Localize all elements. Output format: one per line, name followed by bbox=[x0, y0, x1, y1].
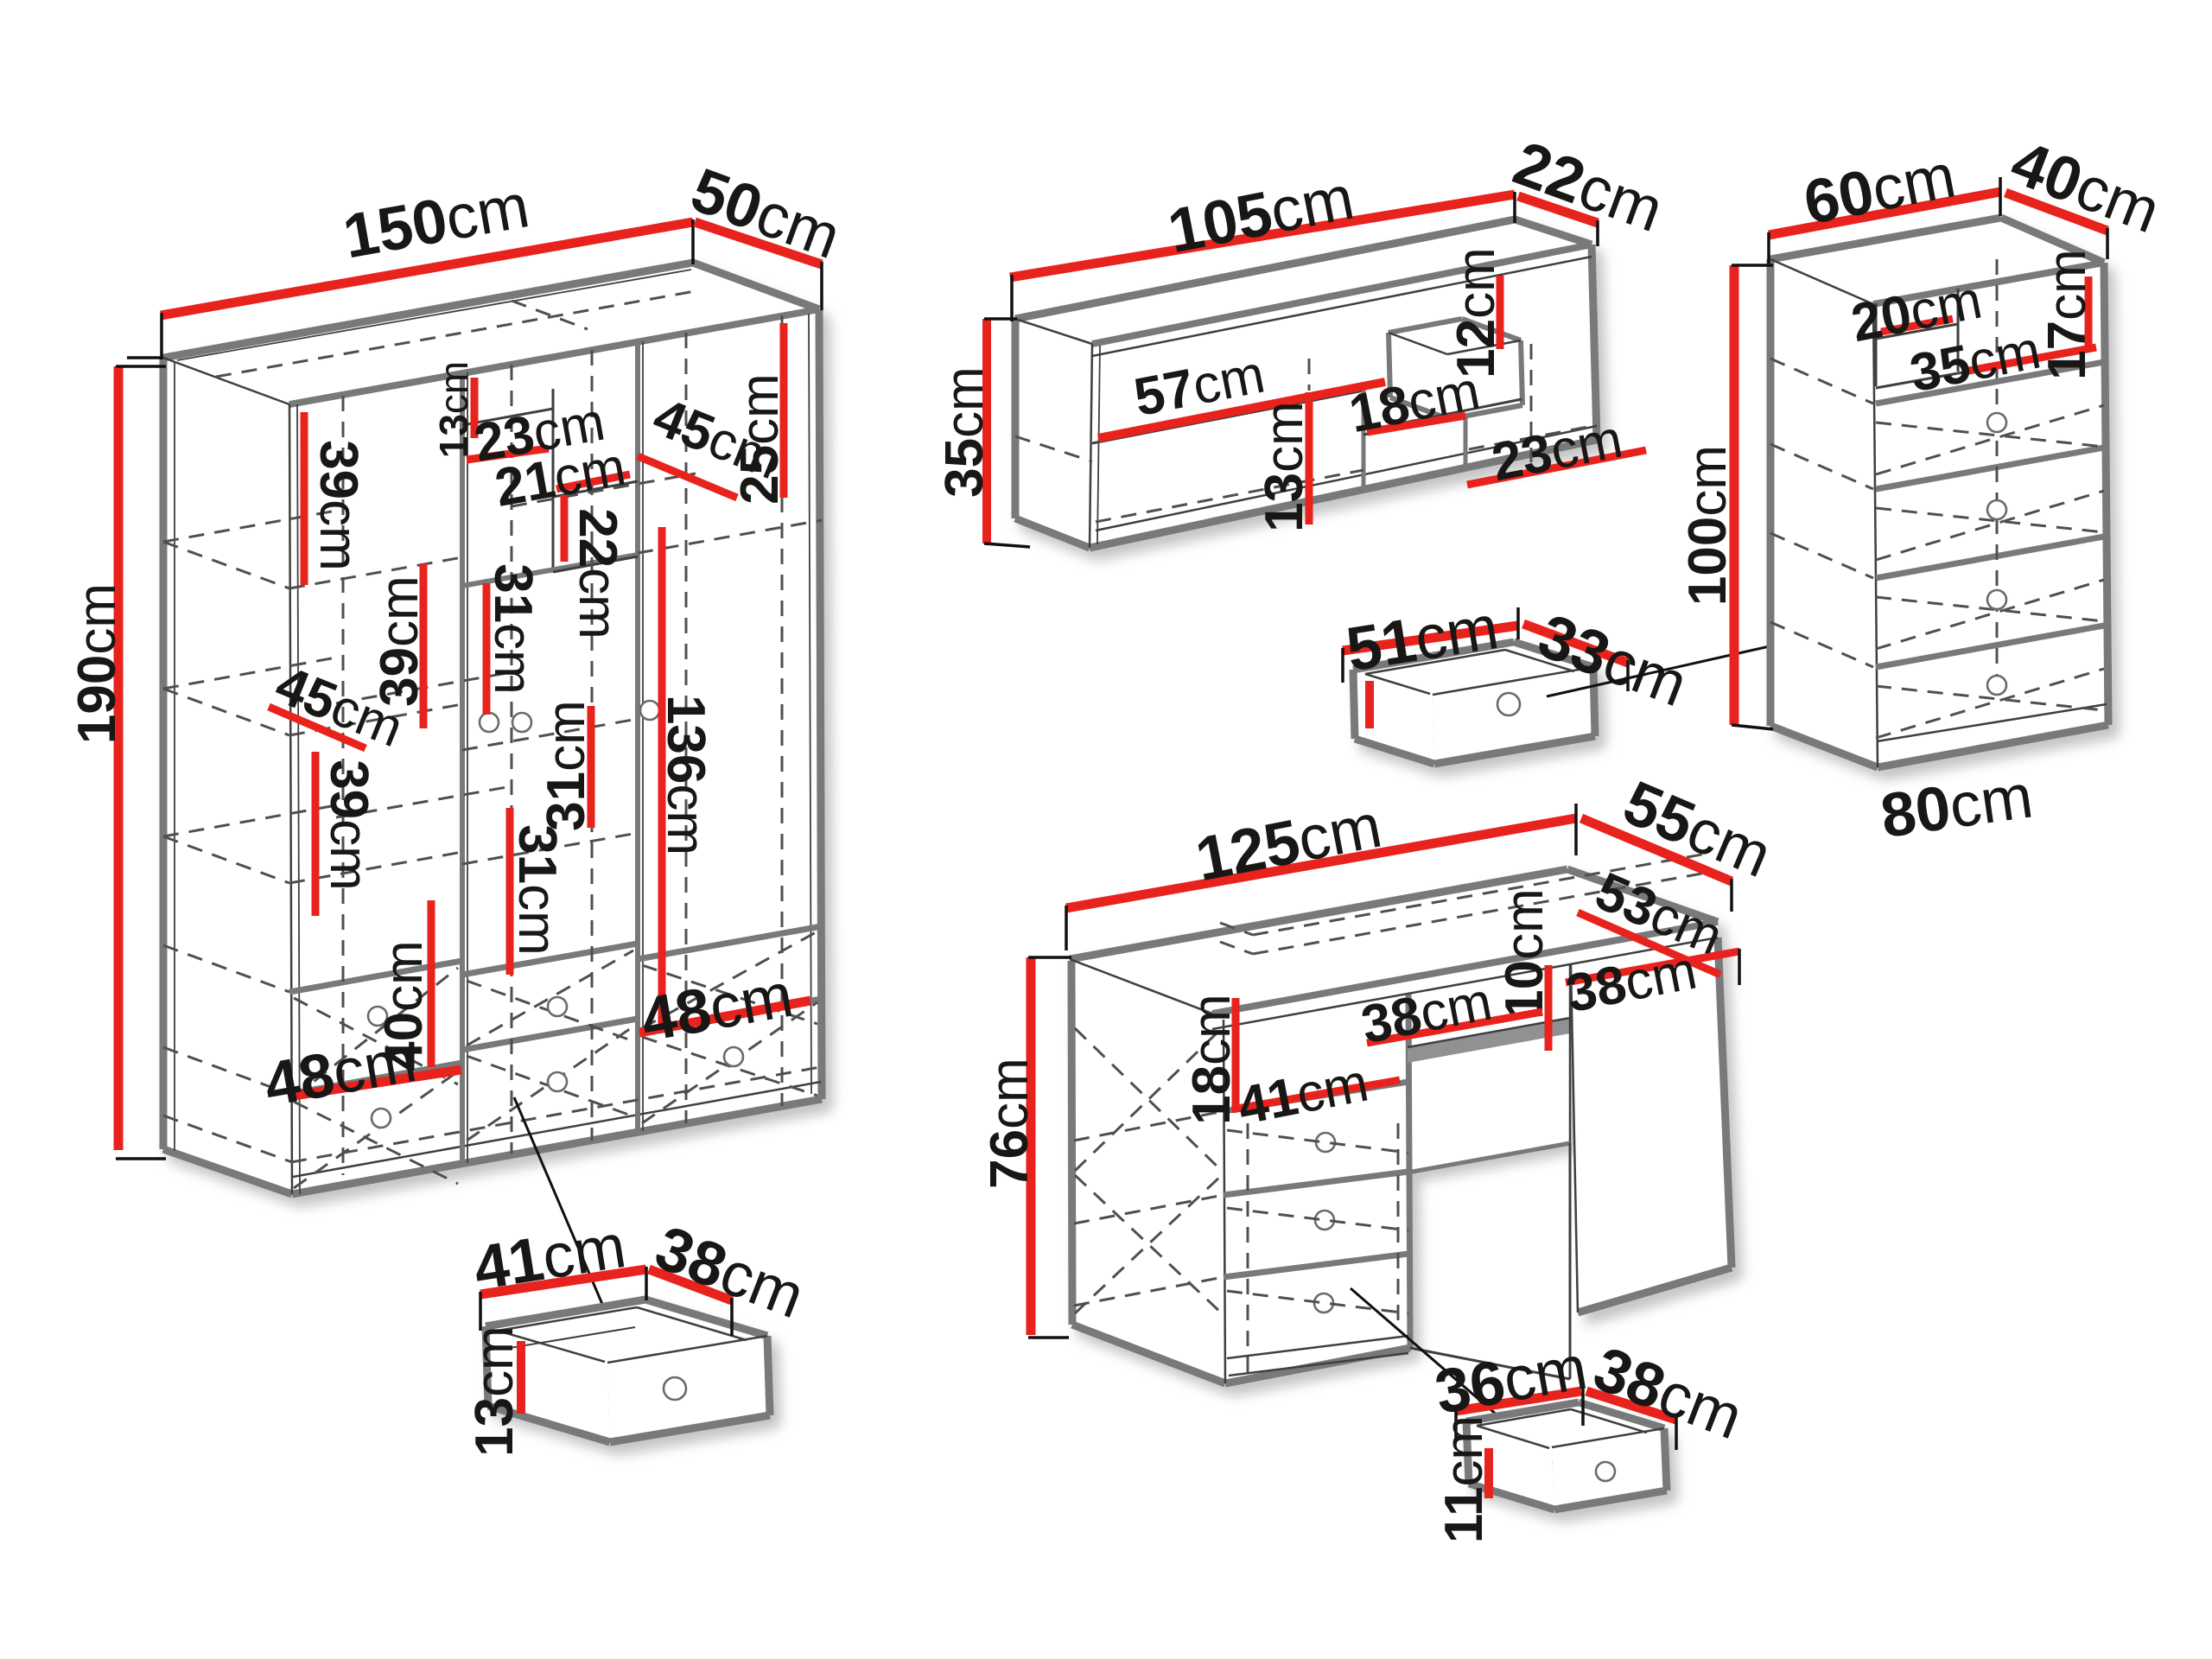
svg-text:25cm: 25cm bbox=[730, 373, 790, 505]
svg-text:136cm: 136cm bbox=[656, 695, 715, 855]
svg-text:18cm: 18cm bbox=[1182, 994, 1242, 1125]
svg-text:31cm: 31cm bbox=[507, 824, 567, 956]
svg-text:10cm: 10cm bbox=[1495, 888, 1554, 1020]
svg-text:190cm: 190cm bbox=[67, 583, 127, 744]
svg-text:13cm: 13cm bbox=[1255, 401, 1314, 532]
svg-text:22cm: 22cm bbox=[568, 508, 627, 639]
svg-text:17cm: 17cm bbox=[2037, 249, 2097, 380]
svg-text:13cm: 13cm bbox=[465, 1325, 524, 1457]
svg-text:12cm: 12cm bbox=[1446, 247, 1506, 378]
svg-text:39cm: 39cm bbox=[319, 760, 378, 891]
svg-text:39cm: 39cm bbox=[370, 575, 429, 707]
svg-text:35cm: 35cm bbox=[935, 366, 995, 498]
svg-text:11cm: 11cm bbox=[1434, 1415, 1494, 1543]
svg-text:31cm: 31cm bbox=[483, 563, 543, 695]
svg-text:39cm: 39cm bbox=[308, 440, 368, 571]
svg-text:31cm: 31cm bbox=[537, 700, 596, 831]
svg-text:100cm: 100cm bbox=[1678, 445, 1738, 606]
svg-text:76cm: 76cm bbox=[980, 1058, 1039, 1189]
svg-text:13cm: 13cm bbox=[431, 361, 476, 459]
